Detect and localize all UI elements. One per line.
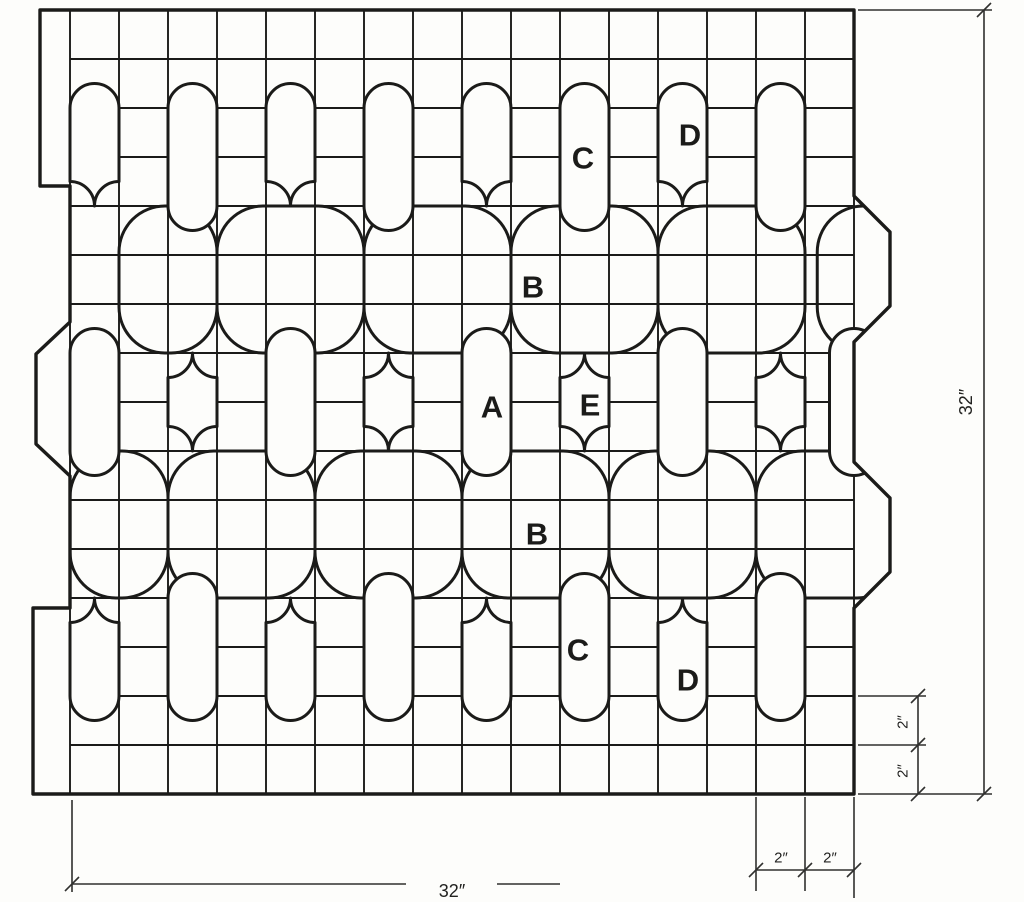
dimension-label-cell-height-2: 2″ xyxy=(895,763,912,777)
piece-label-E: E xyxy=(580,388,601,423)
piece-label-B-upper: B xyxy=(522,270,544,305)
piece-C-stadium xyxy=(364,83,413,230)
quilt-pattern-diagram: ABBCCDDE32″32″2″2″2″2″ xyxy=(0,0,1024,902)
piece-label-B-lower: B xyxy=(526,517,548,552)
dimension-label-cell-height-1: 2″ xyxy=(895,714,912,728)
piece-D-arch xyxy=(266,83,315,206)
dimension-label-cell-width-2: 2″ xyxy=(823,850,837,867)
piece-D-arch xyxy=(462,598,511,720)
piece-label-A: A xyxy=(481,390,503,425)
piece-C-stadium xyxy=(168,84,217,231)
piece-A-stadium xyxy=(266,329,315,476)
piece-D-arch xyxy=(70,598,119,721)
piece-E-lens xyxy=(364,353,413,451)
piece-D-arch xyxy=(658,598,707,721)
piece-D-arch xyxy=(462,84,511,206)
piece-C-stadium xyxy=(364,574,413,721)
piece-E-lens xyxy=(756,353,805,451)
dimension-label-cell-width-1: 2″ xyxy=(774,850,788,867)
piece-label-D-upper: D xyxy=(679,118,701,153)
piece-label-C-upper: C xyxy=(572,141,594,176)
template-pieces xyxy=(70,83,879,720)
piece-A-stadium xyxy=(658,329,707,476)
piece-C-stadium xyxy=(756,83,805,230)
dimension-label-total-width: 32″ xyxy=(439,881,466,901)
piece-D-arch xyxy=(70,83,119,206)
piece-E-lens xyxy=(168,353,217,451)
piece-D-arch xyxy=(266,598,315,721)
piece-C-stadium xyxy=(168,574,217,721)
piece-A-stadium xyxy=(70,329,119,476)
dimension-label-total-height: 32″ xyxy=(956,388,976,415)
pattern-sheet: ABBCCDDE32″32″2″2″2″2″ xyxy=(0,0,1024,902)
piece-C-stadium xyxy=(756,574,805,721)
piece-label-C-lower: C xyxy=(567,633,589,668)
piece-label-D-lower: D xyxy=(677,663,699,698)
